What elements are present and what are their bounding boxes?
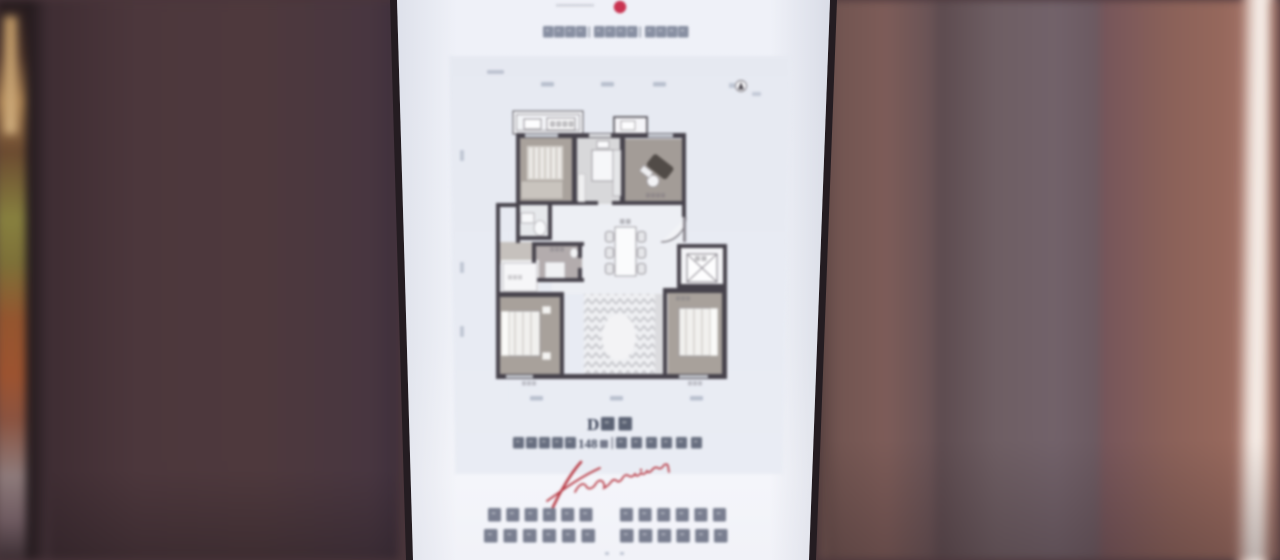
svg-text:148: 148 xyxy=(578,436,598,451)
svg-text:D: D xyxy=(587,415,599,434)
